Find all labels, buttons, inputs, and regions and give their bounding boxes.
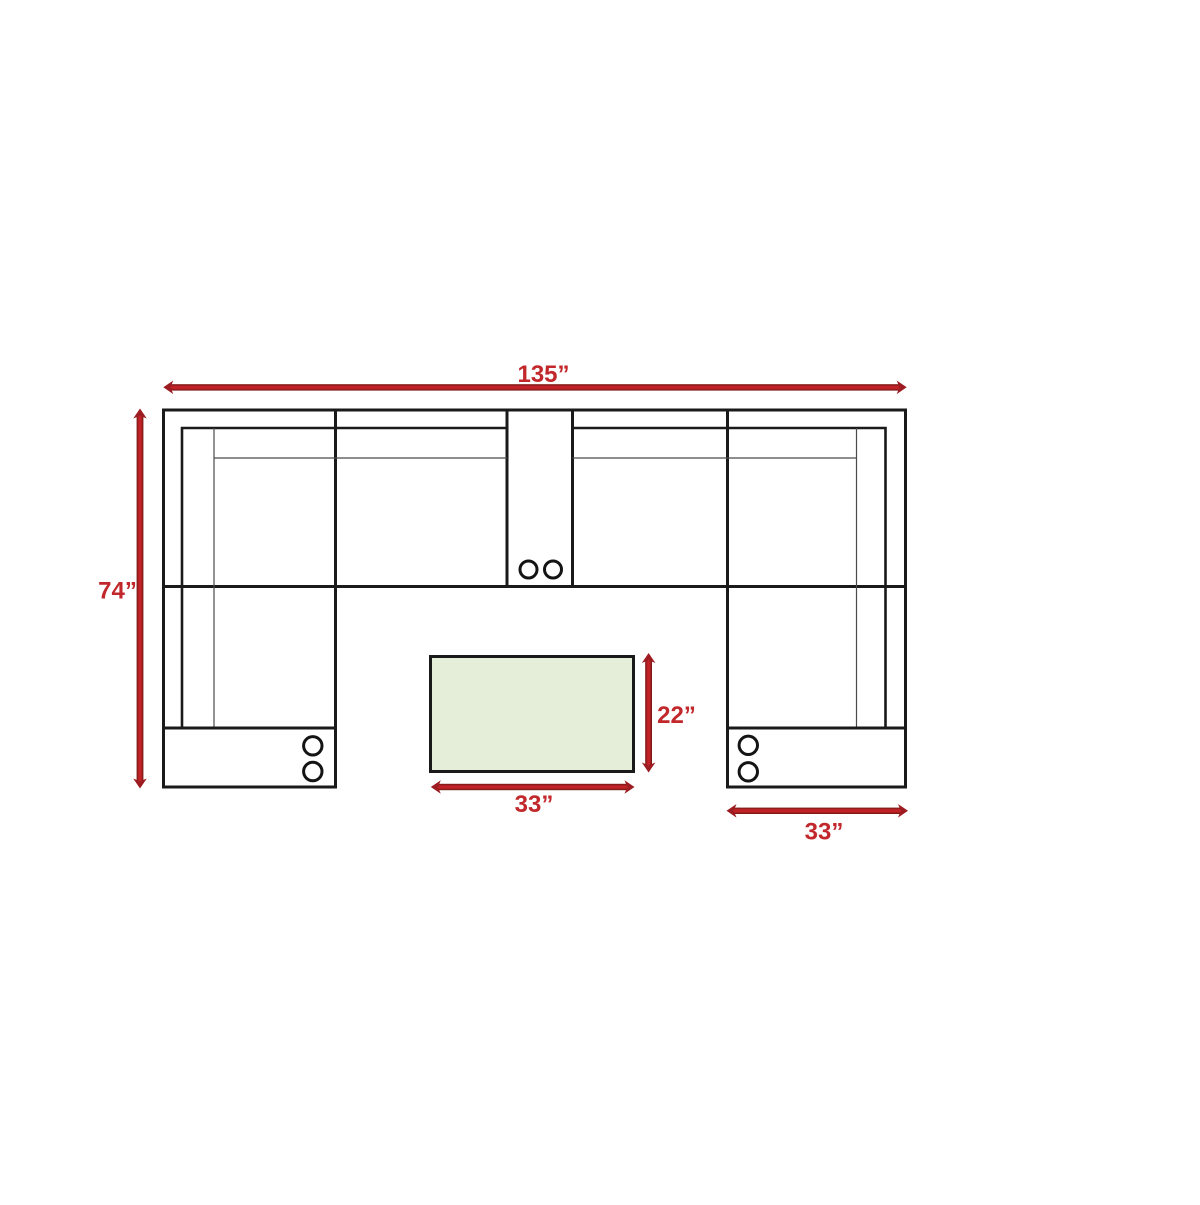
svg-text:33”: 33”	[515, 791, 554, 818]
svg-text:22”: 22”	[657, 702, 696, 729]
svg-text:135”: 135”	[517, 361, 569, 388]
svg-text:74”: 74”	[98, 578, 137, 605]
svg-text:33”: 33”	[805, 819, 844, 846]
